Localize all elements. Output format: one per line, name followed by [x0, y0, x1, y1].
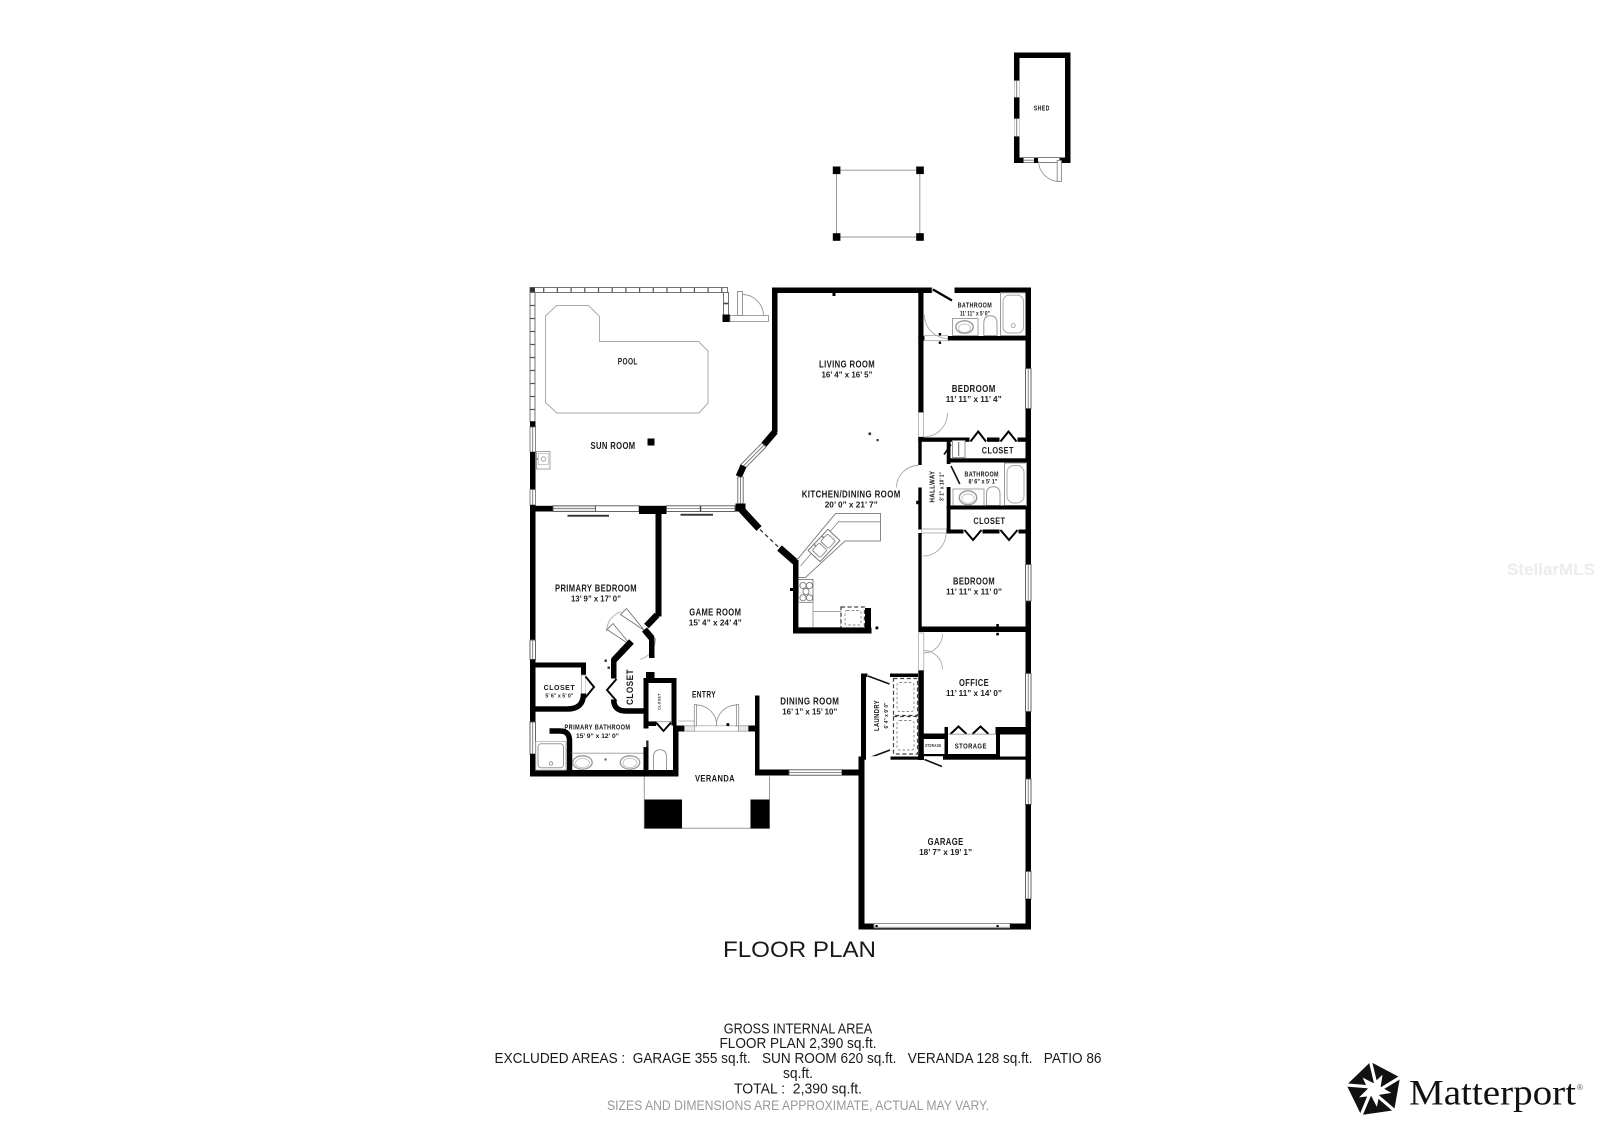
- svg-text:STORAGE: STORAGE: [925, 743, 942, 748]
- svg-text:HALLWAY: HALLWAY: [930, 471, 937, 503]
- svg-text:3’ 1” x 10’ 1”: 3’ 1” x 10’ 1”: [939, 472, 945, 501]
- svg-text:16’ 4” x 16’ 5”: 16’ 4” x 16’ 5”: [822, 370, 873, 380]
- svg-text:sq.ft.: sq.ft.: [783, 1066, 813, 1082]
- svg-text:CLOSET: CLOSET: [973, 516, 1005, 527]
- svg-text:CLOSET: CLOSET: [982, 446, 1014, 457]
- svg-text:13’ 9” x 17’ 0”: 13’ 9” x 17’ 0”: [571, 594, 621, 604]
- svg-text:VERANDA: VERANDA: [695, 774, 735, 785]
- svg-text:15’ 9” x 12’ 0”: 15’ 9” x 12’ 0”: [576, 733, 619, 740]
- svg-text:POOL: POOL: [618, 357, 638, 367]
- svg-text:STORAGE: STORAGE: [955, 742, 987, 751]
- svg-text:LAUNDRY: LAUNDRY: [874, 700, 881, 731]
- svg-text:SUN ROOM: SUN ROOM: [591, 441, 636, 452]
- svg-text:Matterport: Matterport: [1409, 1073, 1576, 1113]
- svg-text:5’ 6” x 5’ 0”: 5’ 6” x 5’ 0”: [545, 694, 573, 700]
- svg-text:StellarMLS: StellarMLS: [1507, 561, 1595, 579]
- svg-text:FLOOR PLAN: FLOOR PLAN: [723, 937, 876, 962]
- svg-text:BATHROOM: BATHROOM: [964, 472, 999, 479]
- svg-text:EXCLUDED AREAS : GARAGE 355 s: EXCLUDED AREAS : GARAGE 355 sq.ft. SUN R…: [495, 1051, 1102, 1067]
- svg-text:®: ®: [1577, 1083, 1583, 1092]
- svg-text:8’ 6” x 5’ 1”: 8’ 6” x 5’ 1”: [969, 480, 998, 486]
- svg-text:SIZES AND DIMENSIONS ARE APPRO: SIZES AND DIMENSIONS ARE APPROXIMATE, AC…: [607, 1098, 989, 1113]
- svg-text:11’ 11” x 11’ 0”: 11’ 11” x 11’ 0”: [946, 587, 1002, 597]
- svg-text:CLOSET: CLOSET: [625, 669, 636, 705]
- svg-text:6’ 4” x 9’ 0”: 6’ 4” x 9’ 0”: [884, 702, 890, 728]
- svg-text:TOTAL : 2,390 sq.ft.: TOTAL : 2,390 sq.ft.: [734, 1082, 862, 1098]
- svg-text:SHED: SHED: [1034, 106, 1050, 113]
- svg-text:BATHROOM: BATHROOM: [958, 303, 993, 310]
- svg-text:11’ 11” x 11’ 4”: 11’ 11” x 11’ 4”: [946, 394, 1002, 404]
- svg-text:CLOSET: CLOSET: [656, 693, 661, 710]
- svg-text:18’ 7” x 19’ 1”: 18’ 7” x 19’ 1”: [919, 847, 972, 857]
- svg-text:ENTRY: ENTRY: [692, 690, 716, 701]
- svg-text:11’ 11” x 5’ 0”: 11’ 11” x 5’ 0”: [960, 311, 990, 318]
- svg-text:11’ 11” x 14’ 0”: 11’ 11” x 14’ 0”: [946, 688, 1002, 698]
- svg-text:CLOSET: CLOSET: [544, 685, 576, 692]
- svg-text:FLOOR PLAN 2,390 sq.ft.: FLOOR PLAN 2,390 sq.ft.: [720, 1036, 877, 1052]
- svg-text:15’ 4” x 24’ 4”: 15’ 4” x 24’ 4”: [689, 618, 742, 628]
- svg-text:20’ 0” x 21’ 7”: 20’ 0” x 21’ 7”: [825, 500, 878, 510]
- svg-text:16’ 1” x 15’ 10”: 16’ 1” x 15’ 10”: [782, 707, 837, 717]
- svg-text:PRIMARY BATHROOM: PRIMARY BATHROOM: [565, 723, 631, 732]
